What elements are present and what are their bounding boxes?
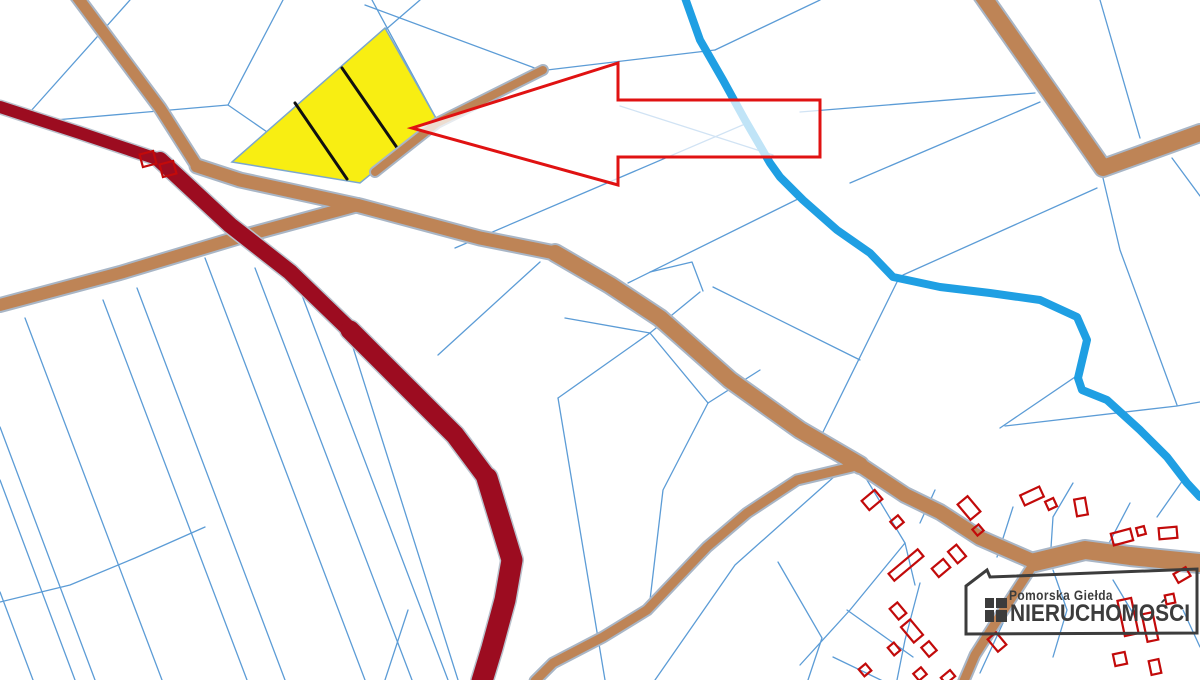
building-outline	[1045, 498, 1057, 510]
parcel-boundary-line	[850, 102, 1040, 183]
parcel-boundary-line	[103, 300, 247, 680]
road	[535, 467, 852, 680]
building-outline	[941, 670, 955, 680]
parcel-boundary-line	[903, 188, 1097, 275]
building-outline	[1111, 529, 1133, 546]
pointer-arrow	[412, 63, 820, 185]
parcel-boundary-line	[0, 527, 205, 602]
parcel-boundary-line	[0, 480, 75, 680]
logo-window-icon	[996, 610, 1007, 622]
building-outline	[901, 619, 923, 642]
building-outline	[1020, 487, 1044, 506]
parcel-boundary-line	[438, 262, 540, 355]
building-outline	[1074, 498, 1088, 517]
parcel-boundary-line	[228, 0, 283, 105]
logo-window-icon	[996, 598, 1007, 608]
parcel-boundary-line	[385, 610, 408, 680]
pointer-arrow-layer	[412, 63, 820, 185]
parcel-boundary-line	[715, 0, 820, 50]
parcel-boundary-line	[0, 592, 33, 680]
parcel-boundary-line	[800, 93, 1035, 112]
highlighted-parcel-layer	[232, 28, 437, 183]
parcel-boundary-line	[650, 262, 703, 291]
building-outline	[948, 545, 966, 564]
building-outline	[932, 559, 951, 577]
parcel-boundary-line	[55, 105, 228, 120]
building-outline	[1113, 652, 1127, 666]
building-outline	[913, 667, 926, 680]
parcel-boundary-line	[558, 333, 650, 398]
logo-window-icon	[985, 598, 994, 608]
parcel-boundary-line	[25, 318, 162, 680]
parcel-boundary-line	[565, 318, 650, 333]
parcel-boundary-line	[1107, 503, 1130, 547]
logo-line2: NIERUCHOMOŚCI	[1010, 599, 1190, 627]
road	[555, 253, 860, 465]
parcel-boundary-line	[897, 583, 920, 680]
building-outline	[1159, 527, 1178, 540]
parcel-boundary-line	[628, 198, 800, 283]
building-outline	[889, 549, 924, 580]
parcel-boundary-line	[1005, 402, 1200, 426]
building-outline	[1136, 526, 1146, 536]
parcel-boundary-line	[1103, 178, 1177, 405]
parcel-boundary-line	[137, 288, 285, 680]
parcel-boundary-line	[1100, 0, 1140, 138]
stream-layer	[684, 0, 1200, 497]
building-outline	[890, 602, 907, 619]
logo-window-icon	[985, 610, 994, 622]
parcel-boundary-line	[822, 282, 897, 434]
map-screenshot: Pomorska Giełda NIERUCHOMOŚCI	[0, 0, 1200, 680]
building-outline	[888, 643, 901, 656]
parcel-boundary-line	[1172, 158, 1200, 196]
road	[1035, 550, 1200, 563]
parcel-boundary-line	[1157, 480, 1183, 517]
parcel-boundary-line	[778, 562, 822, 680]
parcel-boundary-line	[713, 287, 860, 360]
parcel-boundary-line	[255, 268, 412, 680]
highway	[0, 107, 160, 160]
building-outline	[921, 641, 936, 657]
road	[860, 465, 1035, 562]
building-outline	[1149, 659, 1162, 675]
stream	[684, 0, 1200, 497]
parcel-boundary-line	[1000, 375, 1078, 428]
map-canvas[interactable]: Pomorska Giełda NIERUCHOMOŚCI	[0, 0, 1200, 680]
parcel-boundary-line	[547, 50, 715, 70]
